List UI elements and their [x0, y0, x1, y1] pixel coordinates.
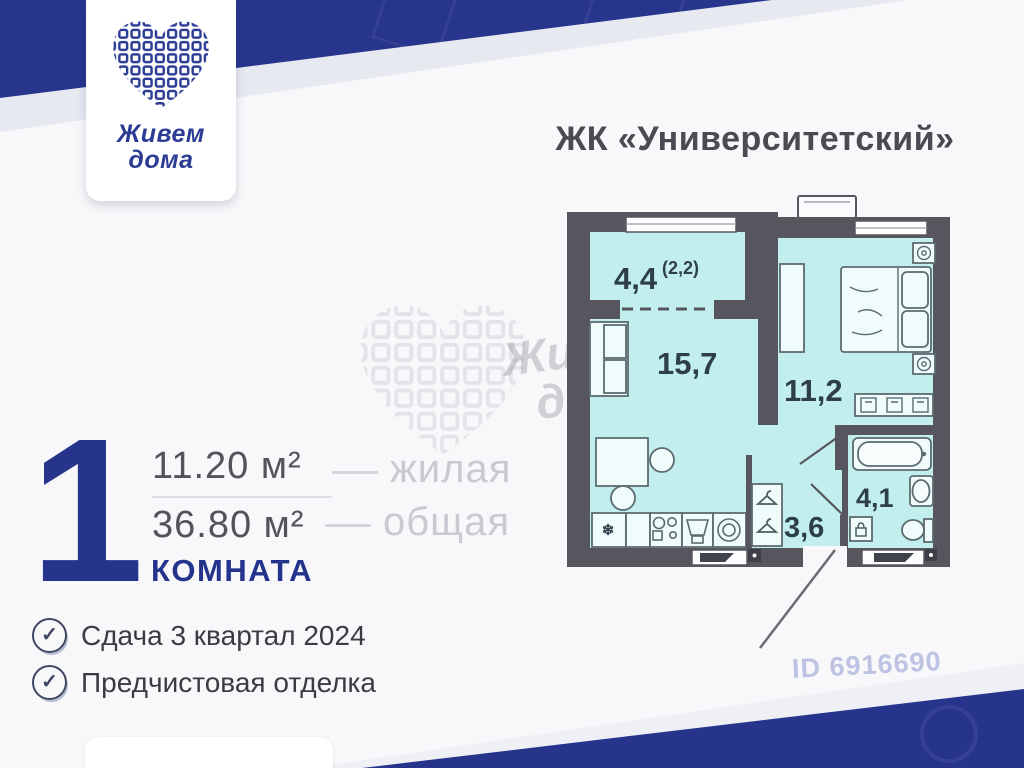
hallway-label: 3,6	[784, 512, 824, 544]
chair	[650, 448, 674, 472]
listing-poster: Живем дома Живем дома ЖК «Университетски…	[0, 0, 1024, 768]
entry-opening	[803, 546, 847, 569]
bathroom-wall-stub	[840, 515, 848, 548]
complex-title: ЖК «Университетский»	[500, 120, 1010, 159]
living-area-label: жилая	[390, 447, 511, 492]
features-list: ✓ Сдача 3 квартал 2024 ✓ Предчистовая от…	[32, 618, 376, 700]
rooms-count: 1	[30, 408, 144, 613]
pillow	[902, 272, 928, 308]
total-area-value: 36.80 м²	[152, 504, 304, 547]
toilet-tank	[924, 519, 933, 542]
table	[596, 438, 648, 486]
total-area-dash	[325, 524, 371, 527]
brand-logo-line2: дома	[117, 148, 205, 174]
feature-delivery: ✓ Сдача 3 квартал 2024	[32, 618, 376, 653]
total-area-label: общая	[383, 500, 510, 545]
tub-drain	[922, 452, 926, 456]
band-circle-decoration	[920, 705, 978, 763]
kitchen-counter	[626, 513, 650, 547]
feature-delivery-text: Сдача 3 квартал 2024	[81, 620, 366, 652]
hall-partition-wall	[746, 455, 752, 548]
living-area-dash	[332, 471, 378, 474]
kitchen-sink	[682, 513, 713, 547]
chair	[611, 486, 635, 510]
bedroom-wall-stub	[835, 425, 847, 470]
boiler-cabinet	[850, 517, 872, 541]
living-room-label: 15,7	[657, 346, 717, 381]
bedroom-bottom-wall	[835, 425, 933, 435]
area-divider	[152, 496, 332, 498]
dresser	[855, 394, 933, 416]
check-circle-icon: ✓	[32, 665, 67, 700]
brand-logo-line1: Живем	[117, 122, 205, 148]
vent-box	[798, 196, 856, 218]
brand-logo-card: Живем дома	[86, 0, 236, 201]
heart-mosaic-logo-icon	[105, 16, 217, 116]
floor-plan: ❄	[562, 192, 952, 662]
feature-finishing: ✓ Предчистовая отделка	[32, 665, 376, 700]
check-circle-icon: ✓	[32, 618, 67, 653]
bedroom-label: 11,2	[784, 373, 843, 408]
toilet-bowl	[902, 520, 924, 540]
balcony-area-label: 4,4	[614, 261, 658, 296]
balcony-reduced-label: (2,2)	[662, 258, 699, 278]
snowflake-icon: ❄	[602, 522, 615, 539]
rooms-word: КОМНАТА	[151, 553, 313, 589]
closet	[780, 264, 804, 352]
brand-logo-text: Живем дома	[117, 122, 205, 173]
stove	[650, 513, 682, 547]
living-area-value: 11.20 м²	[152, 445, 302, 488]
pillow	[902, 311, 928, 347]
bottom-white-card	[85, 737, 333, 768]
feature-finishing-text: Предчистовая отделка	[81, 667, 376, 699]
bathroom-label: 4,1	[856, 483, 894, 513]
